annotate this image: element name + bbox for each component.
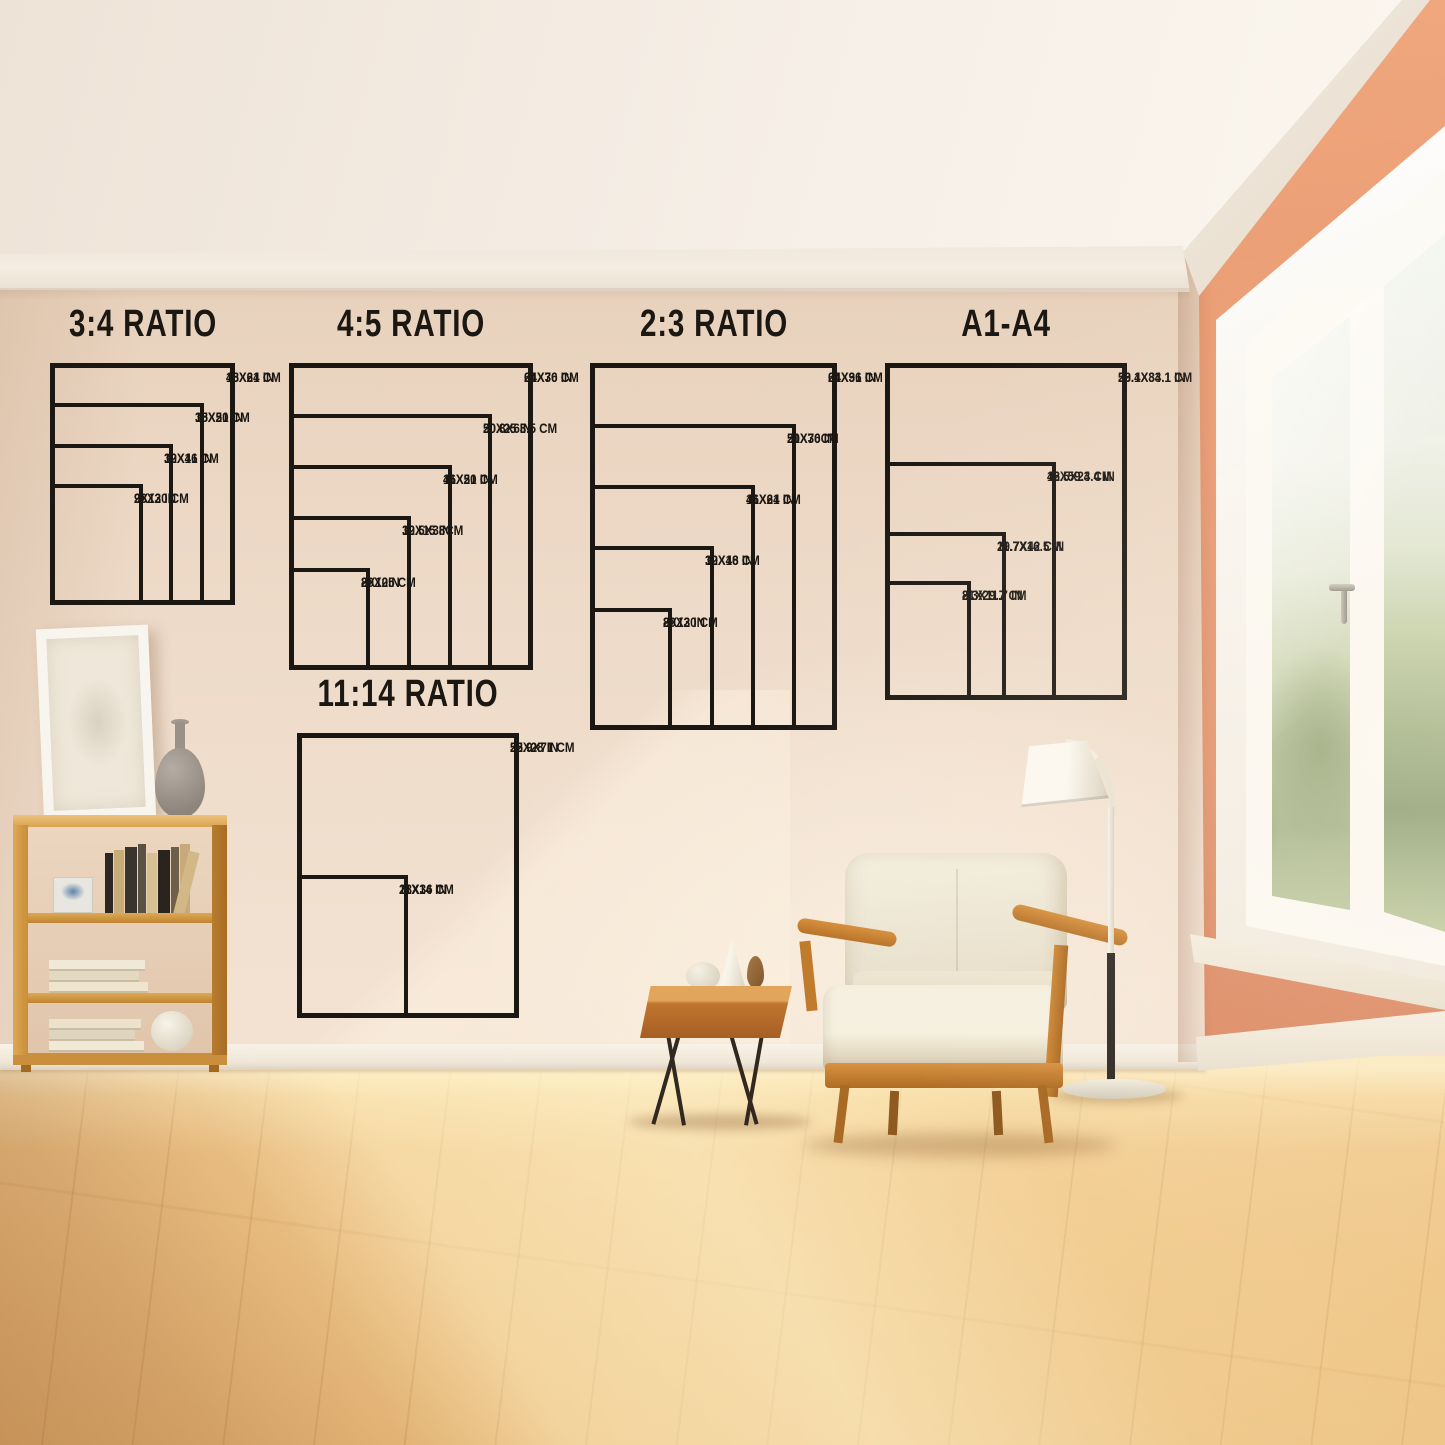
window-handle-top: [1329, 584, 1355, 591]
size-chart: A1-A423.4X33.1 IN59.1X84.1 CM16.5X23.4 I…: [885, 363, 1127, 700]
size-rect: [297, 875, 408, 1018]
picture-frame: [36, 625, 156, 822]
book-stack-middle-2: [49, 971, 139, 982]
floor-lamp: [1010, 735, 1190, 1115]
size-chart: 4:5 RATIO24X30 IN61X76 CM20X25 IN50.8X63…: [289, 363, 533, 670]
size-rect: [50, 484, 143, 605]
lamp-pole-upper: [1108, 807, 1114, 955]
size-label-cm: 41X51 CM: [443, 472, 498, 488]
armchair-shadow: [805, 1133, 1115, 1157]
decor-egg: [686, 962, 720, 990]
chart-title: 4:5 RATIO: [271, 301, 552, 347]
size-label-cm: 61X91 CM: [828, 370, 883, 386]
bookshelf-foot: [21, 1065, 31, 1072]
book-spine: [158, 850, 170, 915]
book-stack-middle-1: [49, 960, 145, 971]
book-stack-middle-3: [49, 982, 148, 993]
chair-leg: [833, 1085, 849, 1144]
shelf-board: [27, 993, 213, 1003]
size-label-cm: 59.1X84.1 CM: [1118, 370, 1192, 386]
bookshelf-top: [13, 815, 227, 827]
size-label-cm: 42X59.4 CM: [1047, 469, 1112, 485]
book-spine: [138, 844, 146, 915]
size-label-cm: 30X46 CM: [705, 553, 760, 569]
chair-leg: [888, 1091, 899, 1135]
window-handle: [1341, 586, 1347, 624]
size-label-cm: 29.7X42 CM: [997, 539, 1062, 555]
size-rect: [590, 608, 672, 730]
size-label-cm: 30.5X38CM: [402, 523, 463, 539]
size-chart: 11:14 RATIO22X28 IN55.9X71 CM11X14 IN28X…: [297, 733, 519, 1018]
size-label-cm: 55.9X71 CM: [510, 740, 575, 756]
size-label-cm: 41X61 CM: [746, 492, 801, 508]
lamp-base: [1062, 1079, 1166, 1099]
decor-teardrop: [747, 956, 764, 988]
book-spine: [125, 847, 137, 915]
bookshelf-foot: [209, 1065, 219, 1072]
size-label-cm: 21X29.7 CM: [962, 588, 1027, 604]
size-rect: [885, 581, 971, 700]
book-spine: [105, 853, 113, 915]
size-rect: [289, 568, 370, 670]
chair-leg: [992, 1091, 1003, 1135]
side-table: [640, 986, 792, 1038]
decor-sphere: [151, 1011, 193, 1051]
size-label-cm: 50.8X63.5 CM: [483, 421, 557, 437]
size-label-cm: 46X61 CM: [226, 370, 281, 386]
size-label-cm: 20X25 CM: [361, 575, 416, 591]
size-label-cm: 30X41 CM: [164, 451, 219, 467]
book-stack-bottom-1: [49, 1019, 141, 1030]
shelf-board: [27, 913, 213, 923]
room-scene: 3:4 RATIO18X24 IN46X61 CM15X20 IN38X51 C…: [0, 0, 1445, 1445]
bookshelf: [13, 815, 227, 1065]
size-label-cm: 61X76 CM: [524, 370, 579, 386]
size-label-cm: 20X30 CM: [663, 615, 718, 631]
book-stack-bottom-2: [49, 1030, 135, 1041]
chart-title: 3:4 RATIO: [2, 301, 283, 347]
size-label-cm: 51X76CM: [787, 431, 839, 447]
chair-arm-post-left: [799, 941, 817, 1012]
bookshelf-bottom: [13, 1053, 227, 1065]
size-label-cm: 23X30 CM: [134, 491, 189, 507]
size-label-cm: 38X51 CM: [195, 410, 250, 426]
frame-sketch: [66, 676, 130, 769]
chart-title: 2:3 RATIO: [573, 301, 854, 347]
crown-molding-shadow: [0, 288, 1190, 300]
size-chart: 2:3 RATIO24X36 IN61X91 CM20X30 IN51X76CM…: [590, 363, 837, 730]
chart-title: 11:14 RATIO: [268, 671, 549, 717]
size-label-cm: 28X36 CM: [399, 882, 454, 898]
book-spine: [147, 853, 157, 915]
chart-title: A1-A4: [866, 301, 1147, 347]
size-chart: 3:4 RATIO18X24 IN46X61 CM15X20 IN38X51 C…: [50, 363, 235, 605]
lamp-pole-lower: [1107, 953, 1115, 1085]
lamp-shade: [1015, 739, 1109, 808]
decor-box: [53, 877, 93, 913]
book-stack-bottom-3: [49, 1041, 144, 1052]
book-spine: [114, 850, 124, 915]
bookshelf-side: [13, 825, 28, 1055]
vase: [155, 748, 205, 818]
bookshelf-side: [212, 825, 227, 1055]
